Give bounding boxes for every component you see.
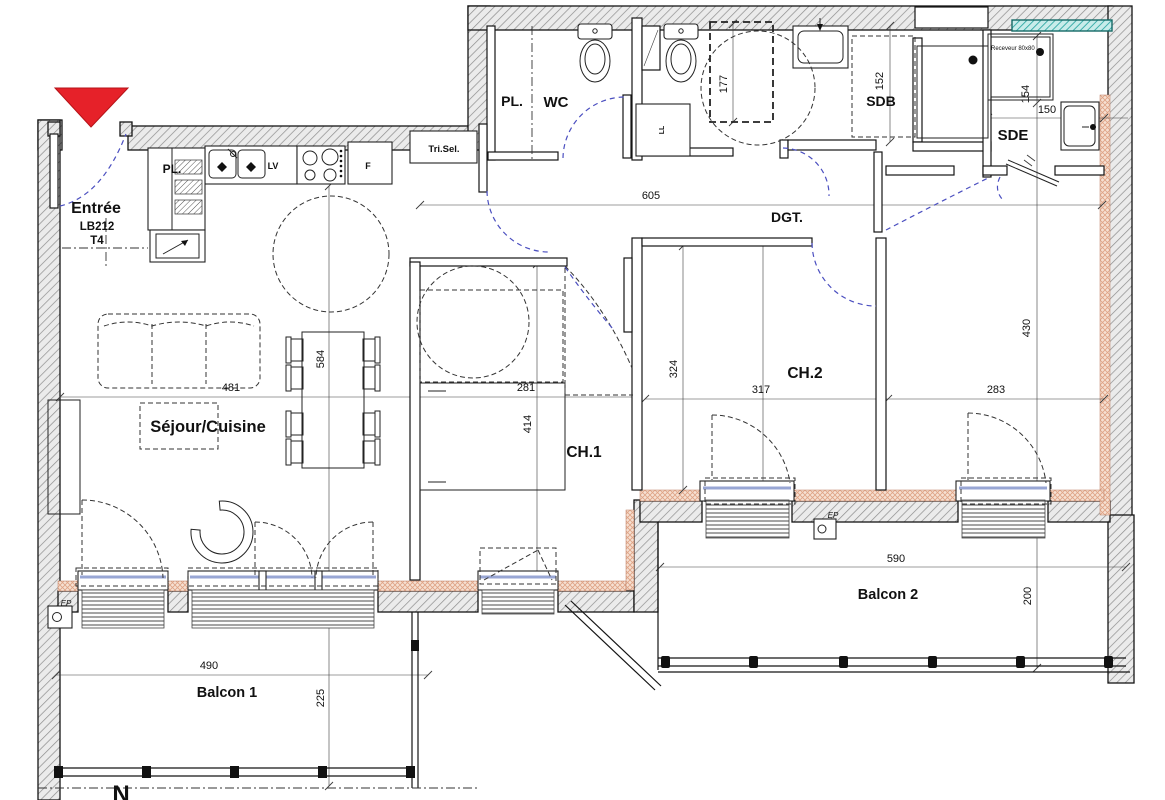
shower-sdb [917, 46, 988, 138]
ch1-furniture [420, 290, 565, 490]
kitchen [205, 142, 392, 184]
door-leaf-wc [623, 95, 631, 158]
room-label-balcon2: Balcon 2 [858, 587, 918, 603]
dim-490: 490 [200, 660, 218, 672]
label-ep-1: EP [61, 599, 72, 608]
label-receveur: Receveur 80x80 [991, 46, 1035, 52]
dining-table [286, 332, 380, 468]
insulation-bottom-left [168, 581, 188, 591]
shower-drain [1036, 48, 1044, 56]
door-leaf-entrance [50, 134, 58, 208]
dim-481: 481 [222, 382, 240, 394]
label-ep-2: EP [828, 511, 839, 520]
insulation-right [1100, 95, 1110, 515]
shutter-stack [962, 500, 1045, 538]
room-label-sde: SDE [998, 127, 1029, 144]
ep-drain-2 [814, 519, 836, 539]
room-label-dgt: DGT. [771, 209, 803, 225]
dim-177: 177 [718, 75, 730, 93]
insulation-bottom-left [378, 581, 478, 591]
door-arc-wc [563, 97, 625, 158]
wall-right [1108, 6, 1132, 520]
unit-type: T4 [90, 235, 104, 247]
dim-150: 150 [1038, 104, 1056, 116]
door-arc-ch1-dashed [565, 266, 632, 368]
room-label-balcon1: Balcon 1 [197, 685, 257, 701]
exterior-walls [38, 6, 1134, 800]
dim-414: 414 [522, 415, 534, 433]
room-label-pl-wc: PL. [501, 93, 523, 109]
armchair [191, 501, 253, 563]
door-arc-entrance [60, 134, 126, 206]
insulation-bottom-right [792, 490, 958, 501]
washbasin-sde [1061, 102, 1099, 150]
sofa [98, 314, 260, 388]
floor-plan-page: Entrée LB212 T4 PL. PL. WC SDB SDE DGT. … [0, 0, 1165, 800]
room-label-sejour: Séjour/Cuisine [150, 418, 266, 436]
window-ch3 [956, 481, 1050, 501]
toilet-sdb [664, 24, 698, 82]
label-dishwasher: LV [268, 161, 279, 171]
balconies [38, 519, 1130, 788]
dim-154: 154 [1020, 85, 1032, 103]
entrance-jamb-right [120, 122, 132, 136]
label-tri-sel: Tri.Sel. [428, 144, 459, 155]
room-label-entree: Entrée [71, 200, 121, 217]
shutter-stack [82, 590, 164, 628]
dim-324: 324 [668, 360, 680, 378]
door-leaf-ch3 [874, 152, 882, 232]
window-sejour-1 [78, 571, 168, 590]
unit-code: LB212 [80, 221, 115, 233]
insulation-step [626, 510, 634, 590]
chair [286, 337, 380, 465]
door-arc-hall [487, 191, 549, 252]
door-leaf-sde [1006, 164, 1057, 186]
window-ch1 [478, 571, 558, 590]
bed [420, 383, 565, 490]
room-label-ch1: CH.1 [566, 444, 602, 461]
dim-225: 225 [315, 689, 327, 707]
turning-circles [273, 31, 815, 378]
dim-590: 590 [887, 553, 905, 565]
dim-605: 605 [642, 190, 660, 202]
insulation-bottom-left [558, 581, 626, 591]
floor-plan-drawing: Entrée LB212 T4 PL. PL. WC SDB SDE DGT. … [0, 0, 1165, 800]
shower-drain [969, 56, 978, 65]
dim-281: 281 [517, 382, 535, 394]
shutter-stack [192, 590, 374, 628]
dim-283: 283 [987, 384, 1005, 396]
washbasin-sdb [793, 18, 848, 68]
door-arc-sdb [783, 148, 829, 196]
dim-317: 317 [752, 384, 770, 396]
insulation-bottom-right [640, 490, 702, 501]
door-arc-ch3 [886, 178, 988, 230]
window-ch2 [700, 481, 794, 501]
entrance-arrow-icon [55, 88, 128, 127]
north-indicator: N [112, 781, 129, 800]
dim-430: 430 [1021, 319, 1033, 337]
insulation-bottom-right [1048, 490, 1104, 501]
door-arc-sde [997, 177, 1002, 199]
living-furniture [48, 314, 380, 563]
ep-drain-1 [48, 606, 72, 628]
wall-bottom-right-seg [640, 501, 702, 522]
wall-bottom-left-seg [378, 591, 478, 612]
label-washer: LL [659, 125, 666, 134]
insulation-bottom-left [58, 581, 78, 591]
door-arc-ch2 [812, 243, 876, 306]
toilet-wc [578, 24, 612, 82]
door-leaf-ch1 [624, 258, 632, 332]
window-sejour-2 [188, 571, 378, 590]
shutter-stack [706, 500, 789, 538]
room-label-sdb: SDB [866, 93, 896, 109]
dim-584: 584 [315, 350, 327, 368]
dim-152: 152 [874, 72, 886, 90]
room-label-ch2: CH.2 [787, 365, 822, 382]
room-label-pl-entree: PL. [163, 162, 182, 176]
wall-left [38, 120, 60, 800]
wall-bottom-left-seg [168, 591, 188, 612]
dim-200: 200 [1022, 587, 1034, 605]
teal-hatch-strip [1012, 20, 1112, 31]
door-arc-ch1 [565, 267, 613, 329]
shutter-stack [482, 590, 554, 614]
door-leaf-hall [479, 124, 487, 192]
room-label-wc: WC [544, 94, 569, 111]
label-fridge: F [365, 161, 371, 171]
cooktop [297, 146, 345, 184]
